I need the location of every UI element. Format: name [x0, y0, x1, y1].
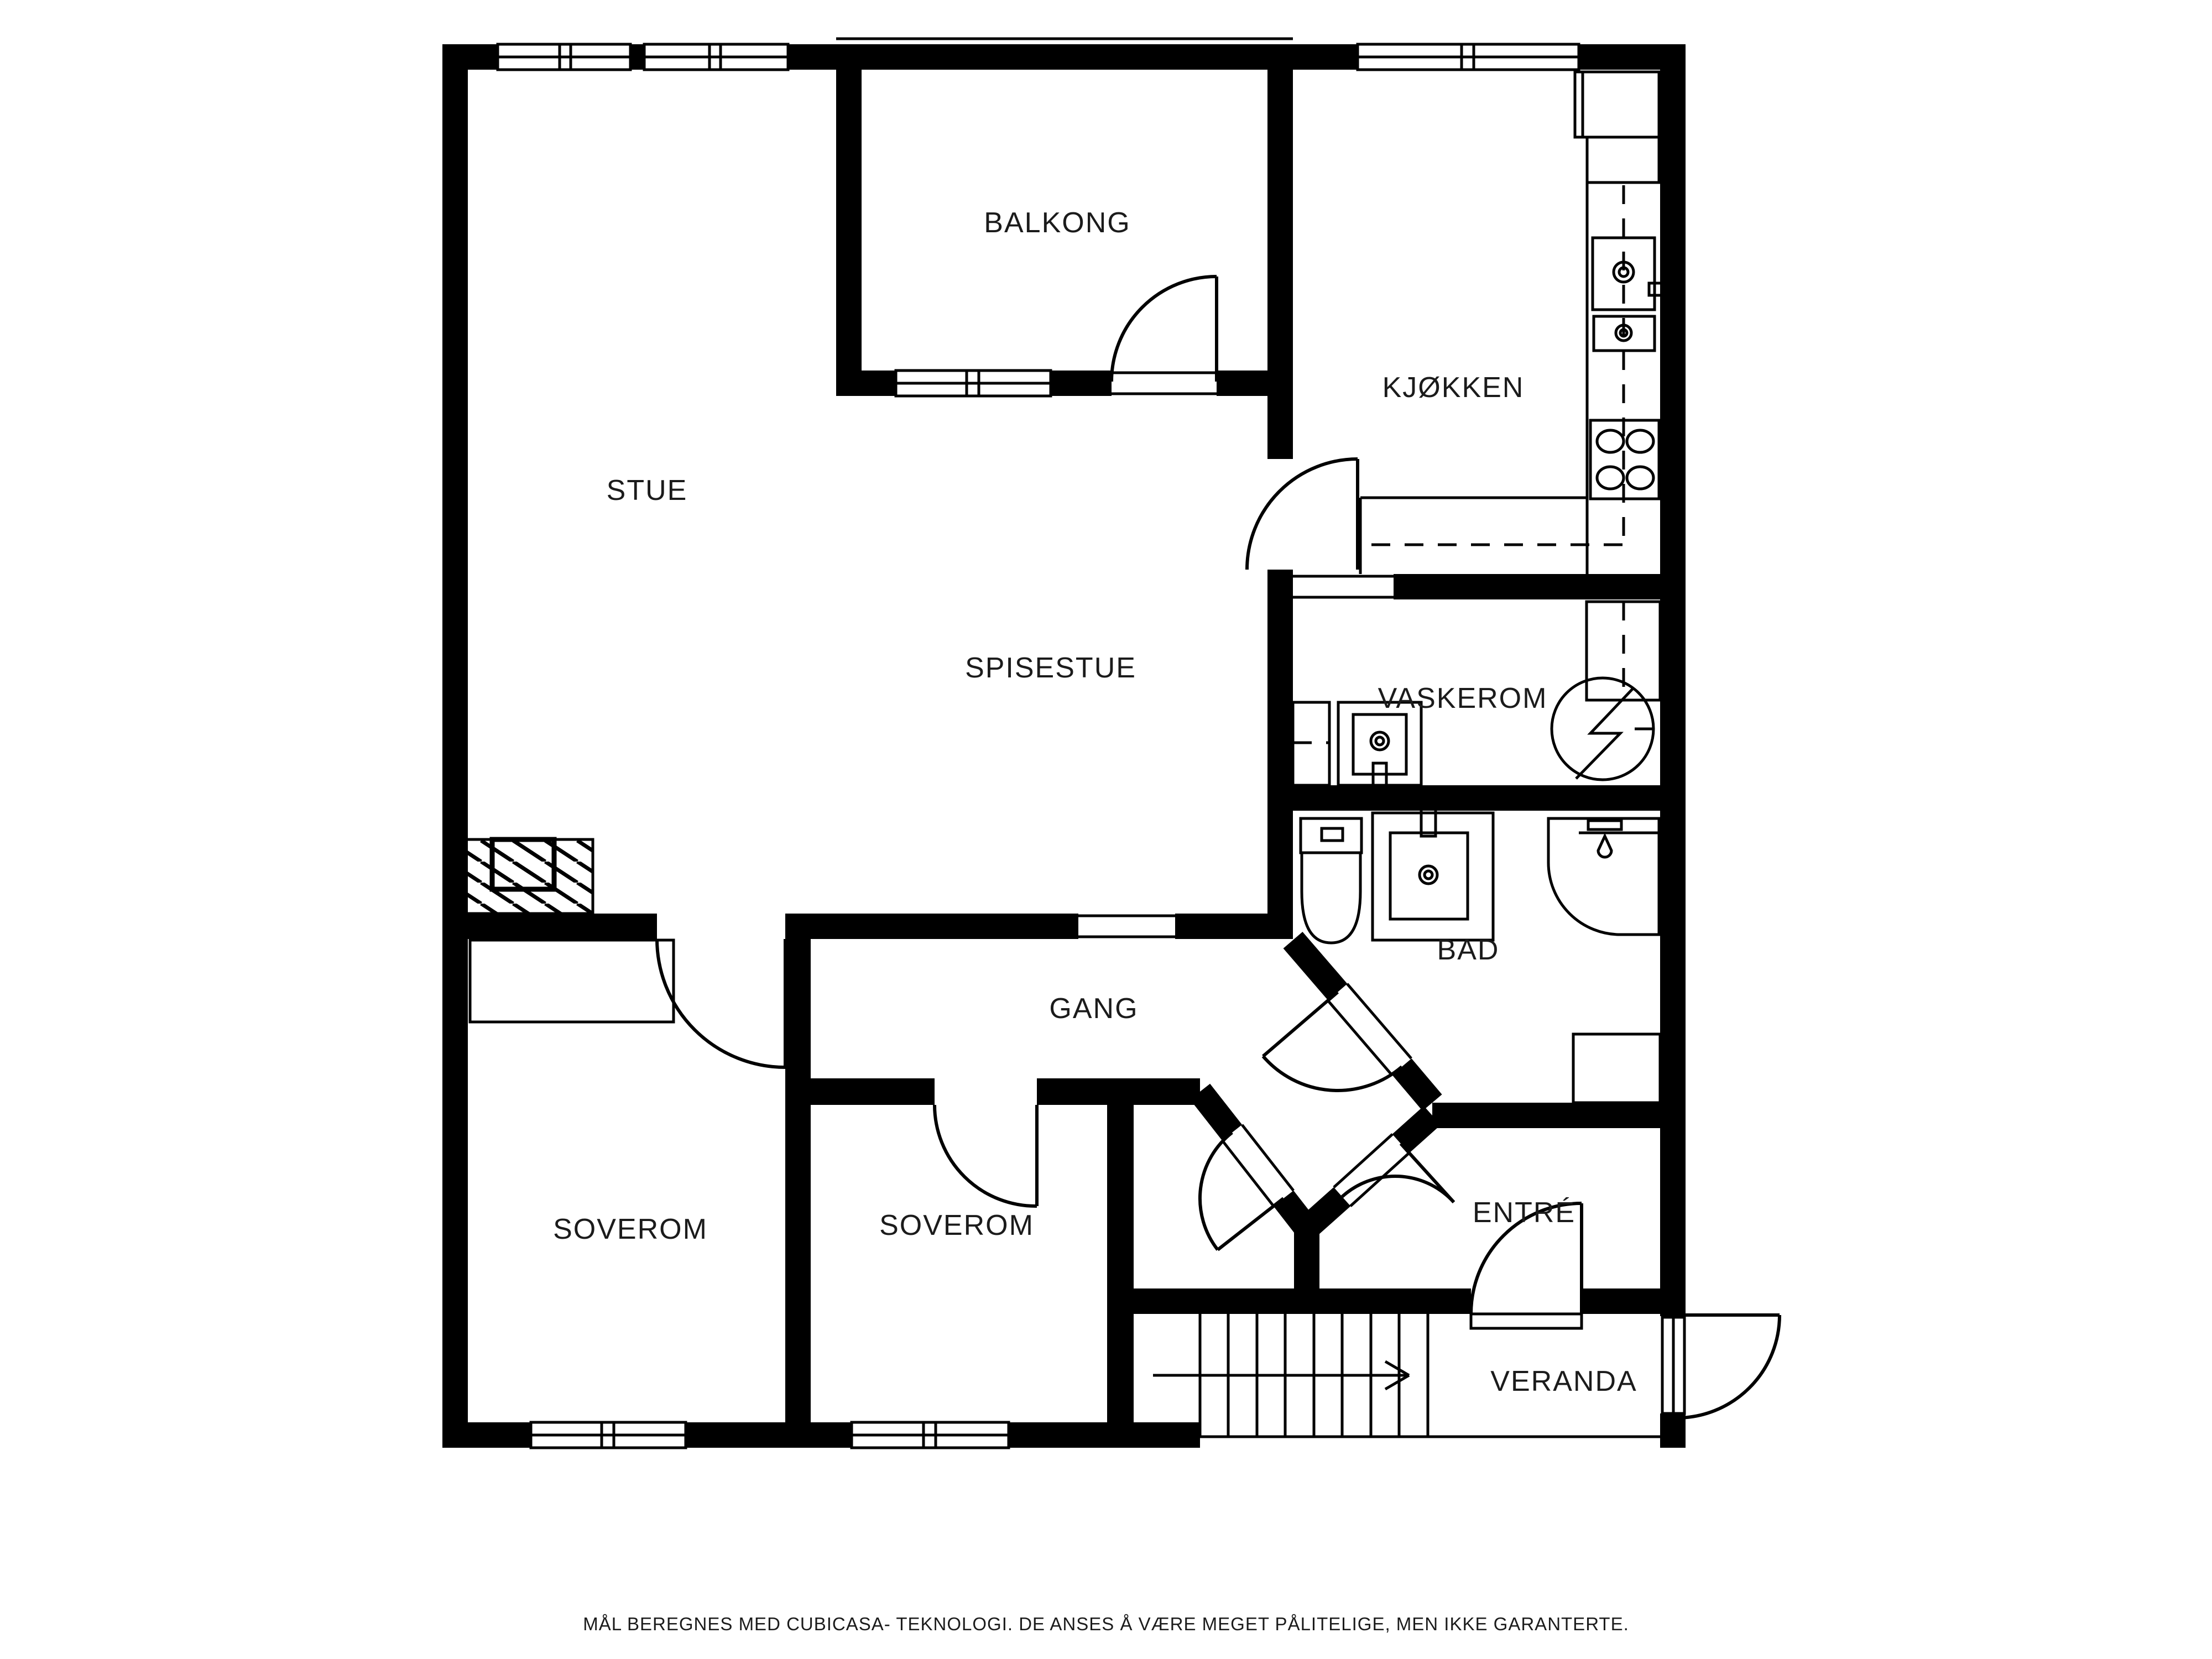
window: [531, 1422, 686, 1448]
room-label-veranda: VERANDA: [1490, 1365, 1637, 1397]
passage-threshold: [1078, 373, 1684, 1413]
room-label-soverom-2: SOVEROM: [879, 1209, 1034, 1241]
water-heater-icon: [1552, 678, 1660, 780]
room-label-gang: GANG: [1049, 993, 1138, 1025]
toilet-icon: [1301, 818, 1361, 943]
room-label-spisestue: SPISESTUE: [965, 652, 1136, 684]
wardrobe: [470, 940, 674, 1022]
window: [1358, 44, 1579, 70]
vanity-sink-icon: [1373, 808, 1493, 940]
window: [852, 1422, 1009, 1448]
laundry-counter: [1293, 702, 1329, 785]
chimney-icon: [455, 839, 593, 914]
sink-icon: [1593, 238, 1666, 351]
disclaimer-text: MÅL BEREGNES MED CUBICASA- TEKNOLOGI. DE…: [0, 1614, 2212, 1635]
room-label-soverom-1: SOVEROM: [553, 1213, 708, 1245]
fridge-icon: [1575, 72, 1659, 137]
room-label-kjokken: KJØKKEN: [1383, 372, 1525, 404]
kitchen-cabinet: [1587, 137, 1659, 182]
laundry-sink-icon: [1338, 702, 1421, 785]
room-label-balkong: BALKONG: [984, 207, 1130, 239]
room-label-stue: STUE: [607, 474, 688, 507]
window: [498, 44, 788, 70]
floor-plan-page: BALKONG STUE KJØKKEN SPISESTUE VASKEROM …: [0, 0, 2212, 1659]
shower-icon: [1548, 818, 1659, 935]
room-label-vaskerom: VASKEROM: [1378, 682, 1548, 714]
tall-cabinet: [1587, 602, 1660, 700]
room-label-bad: BAD: [1437, 934, 1500, 966]
floor-plan: BALKONG STUE KJØKKEN SPISESTUE VASKEROM …: [0, 0, 2212, 1659]
room-label-entre: ENTRÉ: [1473, 1197, 1575, 1229]
window: [896, 371, 1051, 396]
bath-cabinet: [1573, 1034, 1660, 1103]
